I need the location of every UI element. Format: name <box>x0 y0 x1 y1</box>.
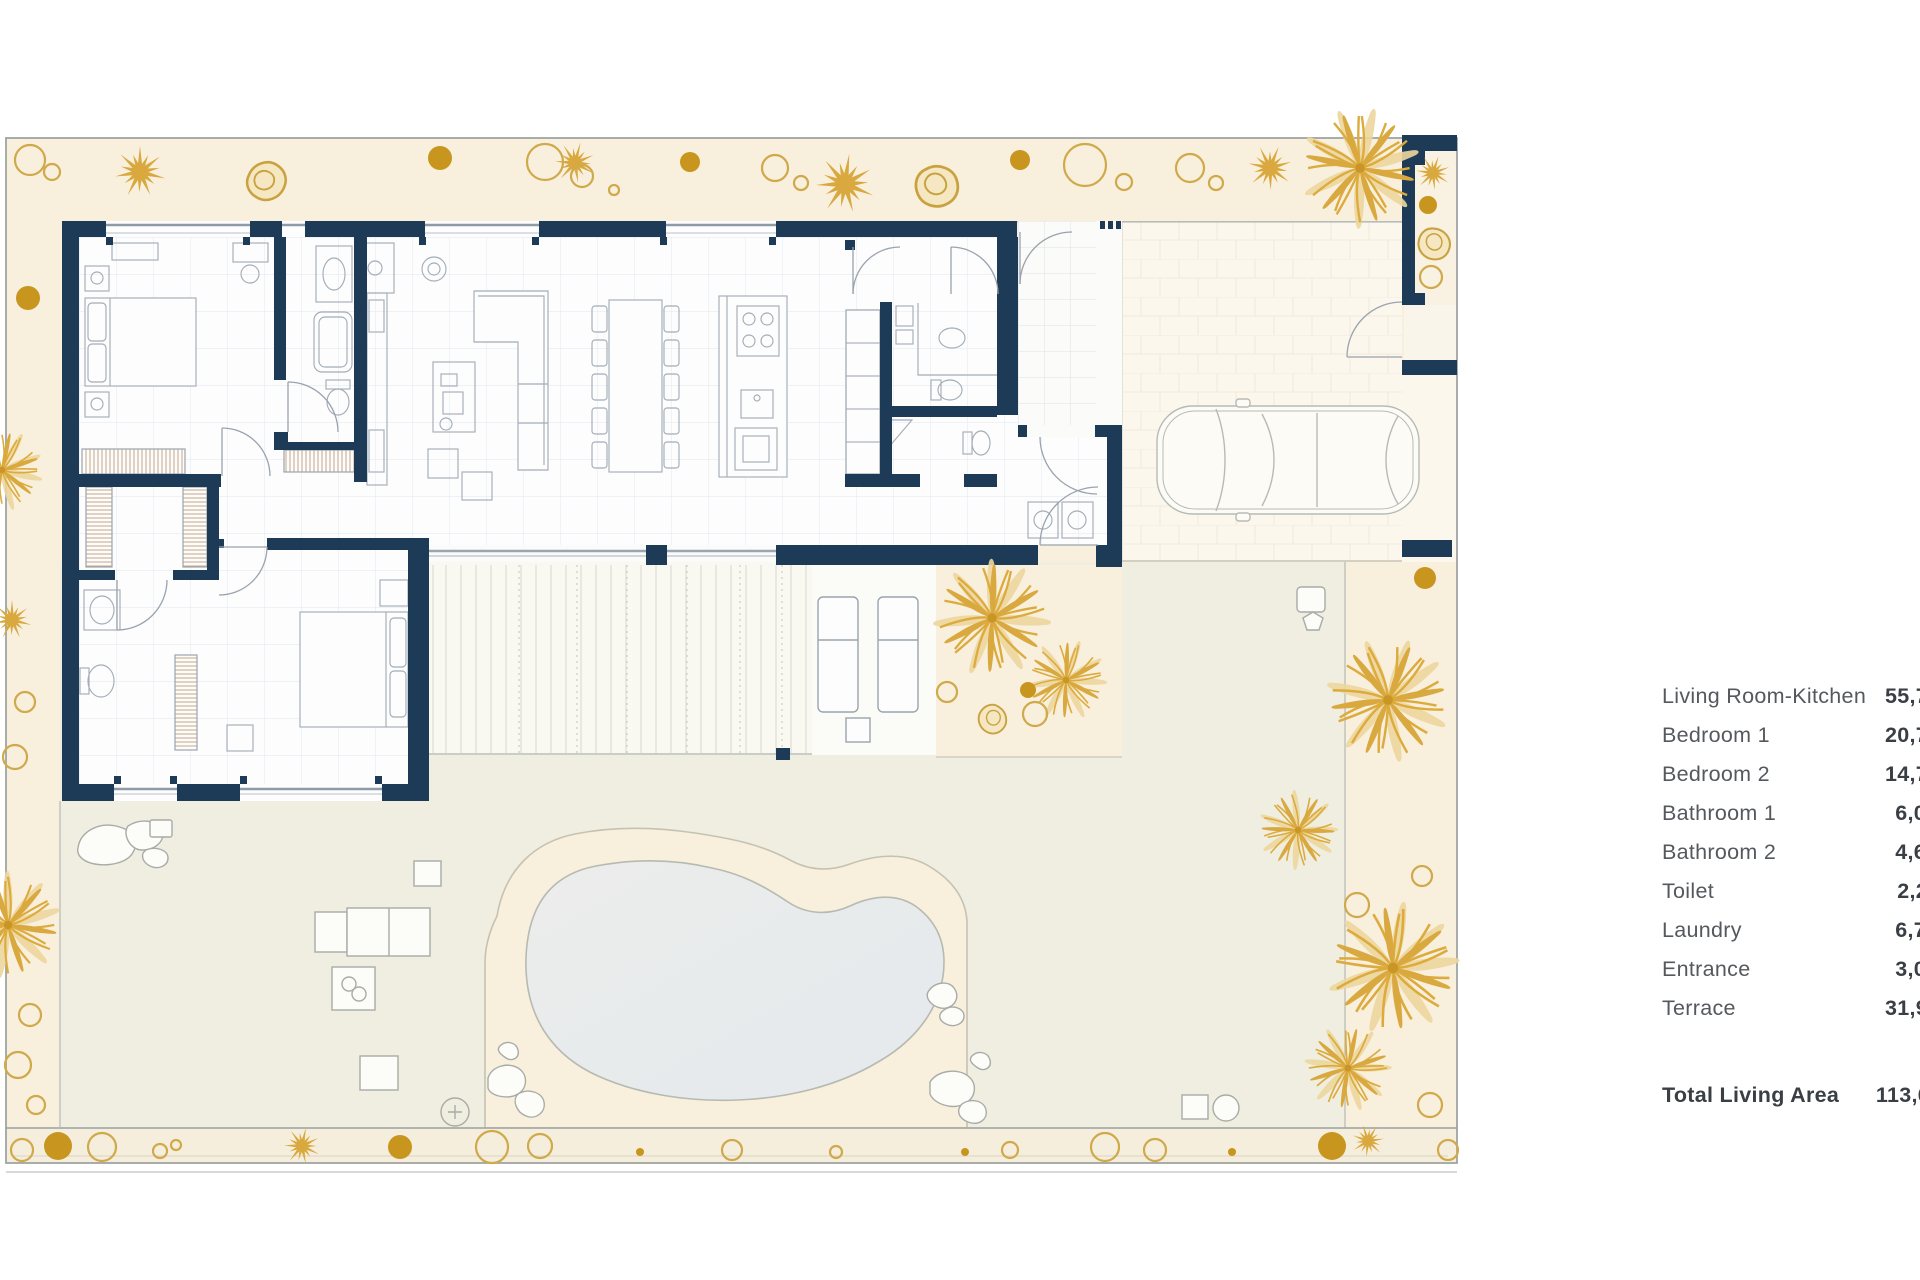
svg-text:Living Room-Kitchen: Living Room-Kitchen <box>1662 684 1866 708</box>
svg-text:55,7: 55,7 <box>1885 684 1920 708</box>
svg-text:Bathroom 2: Bathroom 2 <box>1662 840 1776 864</box>
svg-text:Entrance: Entrance <box>1662 957 1750 981</box>
svg-text:14,7: 14,7 <box>1885 762 1920 786</box>
svg-text:Laundry: Laundry <box>1662 918 1742 942</box>
svg-text:Terrace: Terrace <box>1662 996 1736 1020</box>
svg-text:20,7: 20,7 <box>1885 723 1920 747</box>
svg-text:3,0: 3,0 <box>1895 957 1920 981</box>
svg-text:Bedroom 2: Bedroom 2 <box>1662 762 1770 786</box>
svg-text:4,6: 4,6 <box>1895 840 1920 864</box>
svg-text:2,2: 2,2 <box>1897 879 1920 903</box>
svg-text:31,9: 31,9 <box>1885 996 1920 1020</box>
svg-text:Bedroom 1: Bedroom 1 <box>1662 723 1770 747</box>
svg-text:6,7: 6,7 <box>1895 918 1920 942</box>
svg-text:Bathroom 1: Bathroom 1 <box>1662 801 1776 825</box>
svg-text:Total Living Area: Total Living Area <box>1662 1083 1840 1107</box>
svg-text:6,0: 6,0 <box>1895 801 1920 825</box>
svg-text:Toilet: Toilet <box>1662 879 1714 903</box>
svg-text:113,6: 113,6 <box>1876 1083 1920 1107</box>
